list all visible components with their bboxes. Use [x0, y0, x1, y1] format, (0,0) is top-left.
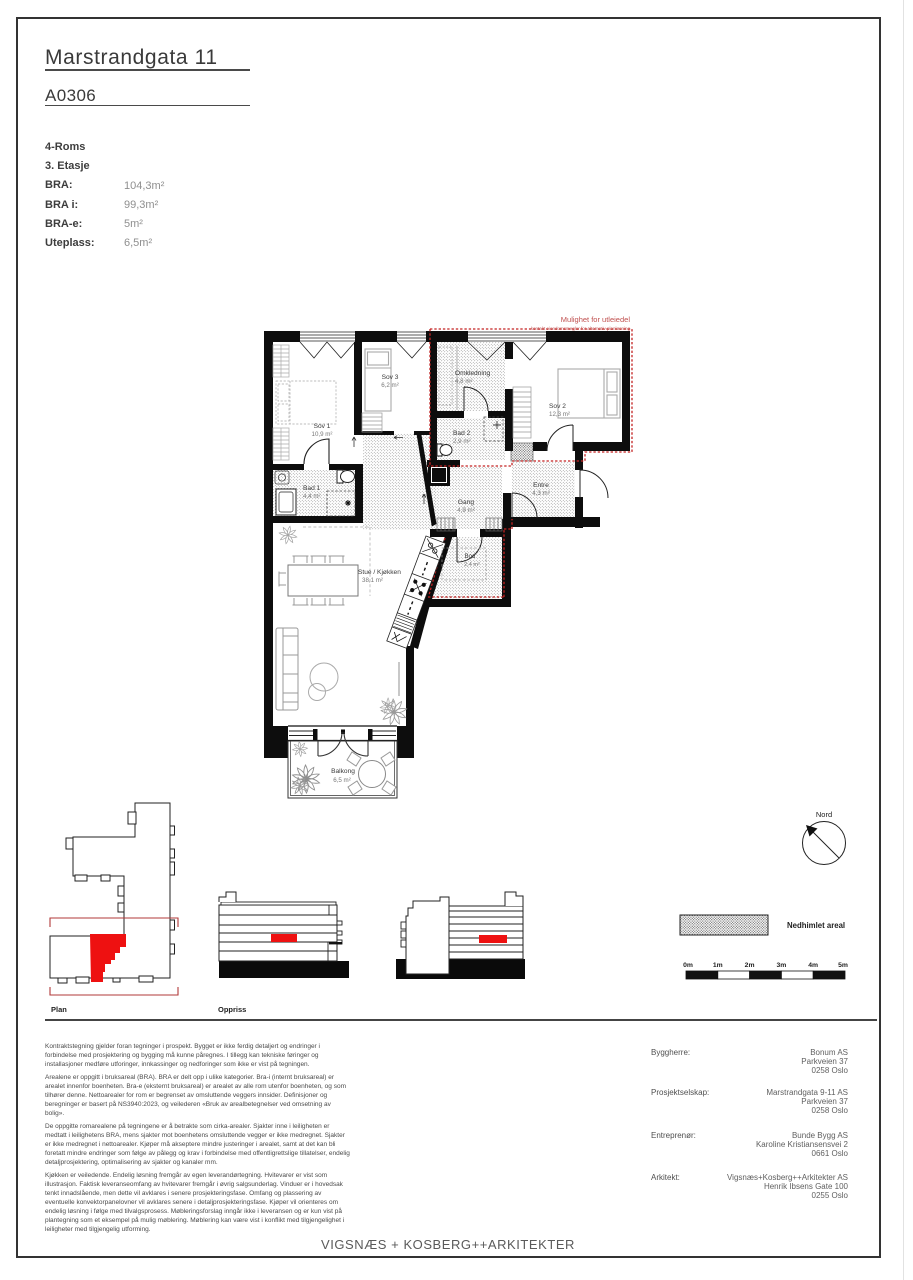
svg-text:38,1 m²: 38,1 m² — [362, 577, 383, 584]
svg-text:1m: 1m — [713, 962, 723, 969]
svg-text:4m: 4m — [808, 962, 818, 969]
svg-text:0m: 0m — [683, 962, 693, 969]
svg-text:3m: 3m — [776, 962, 786, 969]
svg-text:Balkong: Balkong — [331, 768, 355, 775]
svg-text:2,9 m²: 2,9 m² — [453, 438, 471, 445]
svg-text:2m: 2m — [745, 962, 755, 969]
svg-text:Sov 1: Sov 1 — [314, 423, 331, 430]
svg-text:10,9 m²: 10,9 m² — [312, 431, 333, 438]
svg-text:2,4 m²: 2,4 m² — [464, 562, 480, 568]
svg-text:4,9 m²: 4,9 m² — [457, 507, 475, 514]
svg-text:kontakt eiendomsmegler for alt: kontakt eiendomsmegler for alternativ pl… — [531, 326, 631, 331]
svg-text:Gang: Gang — [458, 499, 474, 506]
svg-text:Sov 3: Sov 3 — [382, 374, 399, 381]
svg-text:4,4 m²: 4,4 m² — [303, 493, 321, 500]
svg-text:Entre: Entre — [533, 482, 549, 489]
svg-text:5m: 5m — [838, 962, 848, 969]
svg-text:12,3 m²: 12,3 m² — [549, 411, 570, 418]
svg-text:Nedhimlet areal: Nedhimlet areal — [787, 921, 845, 930]
svg-text:6,2 m²: 6,2 m² — [381, 382, 399, 389]
svg-text:Sov 2: Sov 2 — [549, 403, 566, 410]
svg-text:Oppriss: Oppriss — [218, 1005, 246, 1014]
svg-text:6,5 m²: 6,5 m² — [333, 777, 351, 784]
svg-text:Omkledning: Omkledning — [455, 370, 491, 377]
svg-text:Nord: Nord — [816, 810, 832, 819]
svg-text:4,3 m²: 4,3 m² — [532, 490, 550, 497]
svg-text:Mulighet for utleiedel: Mulighet for utleiedel — [561, 315, 631, 324]
svg-text:Bod: Bod — [465, 554, 476, 560]
svg-text:Bad 1: Bad 1 — [303, 485, 321, 492]
svg-text:Plan: Plan — [51, 1005, 67, 1014]
svg-text:4,8 m²: 4,8 m² — [455, 378, 473, 385]
svg-text:Bad 2: Bad 2 — [453, 430, 471, 437]
svg-text:Stue / Kjøkken: Stue / Kjøkken — [358, 569, 401, 576]
